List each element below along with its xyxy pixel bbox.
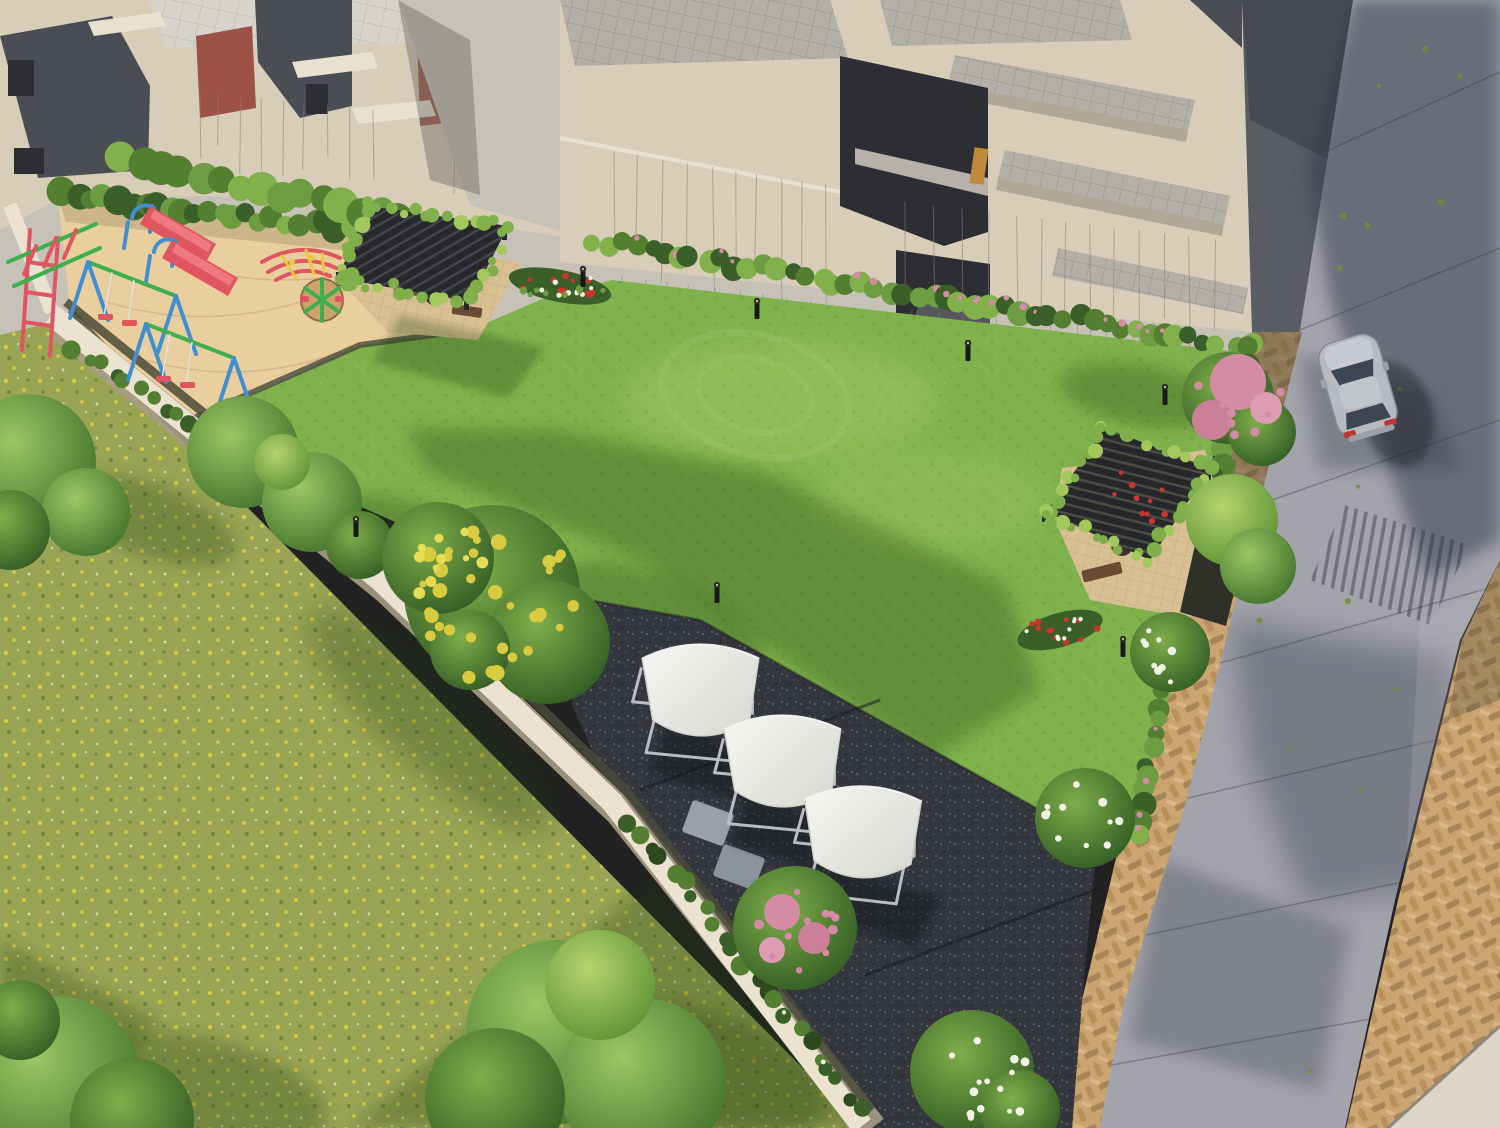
- fallen-leaf: [1256, 618, 1262, 624]
- white-flower: [589, 276, 593, 280]
- yellow-blossom: [542, 555, 555, 568]
- hedge-leaf: [1144, 737, 1164, 757]
- vine-leaf: [1180, 452, 1191, 463]
- blossom: [968, 1114, 975, 1121]
- blossom: [1004, 295, 1010, 301]
- vine-leaf: [362, 204, 376, 218]
- bollard-lamp: [582, 268, 584, 270]
- yellow-blossom: [497, 643, 508, 654]
- red-flower: [562, 273, 568, 279]
- vine-leaf: [416, 291, 428, 303]
- hedge-leaf: [803, 1032, 821, 1050]
- vine-leaf: [373, 283, 383, 293]
- white-flower: [1067, 627, 1071, 631]
- red-flower: [528, 277, 532, 281]
- blossom: [1104, 841, 1111, 848]
- blossom: [822, 910, 830, 918]
- vine-leaf: [1045, 525, 1054, 534]
- vine-leaf: [1105, 423, 1117, 435]
- red-flower: [1036, 625, 1042, 631]
- blossom: [1084, 843, 1089, 848]
- blossom: [1098, 798, 1107, 807]
- blossom: [974, 1037, 981, 1044]
- hedge-leaf: [684, 890, 696, 902]
- blossom: [769, 953, 776, 960]
- facade-joint: [988, 212, 989, 306]
- blossom: [1230, 430, 1239, 439]
- yellow-blossom: [418, 544, 426, 552]
- bollard-light: [1120, 636, 1126, 657]
- fallen-leaf: [1340, 213, 1346, 219]
- red-flower: [1078, 637, 1083, 642]
- bollard-light: [965, 340, 971, 361]
- vine-leaf: [361, 284, 369, 292]
- blossom: [977, 1105, 985, 1113]
- blossom: [1044, 804, 1050, 810]
- hedge-leaf: [631, 826, 649, 844]
- hedge-leaf: [1036, 305, 1057, 326]
- blossom: [1137, 812, 1143, 818]
- vine-leaf: [497, 228, 506, 237]
- vine-leaf: [388, 278, 399, 289]
- yellow-blossom: [463, 555, 469, 561]
- hedge-leaf: [764, 990, 782, 1008]
- hedge-leaf: [1237, 336, 1257, 356]
- vine-leaf: [1043, 592, 1055, 604]
- red-flower: [1160, 488, 1165, 493]
- blossom: [785, 932, 792, 939]
- plumeria-bed-right: [1130, 612, 1210, 692]
- blossom: [796, 967, 802, 973]
- blossom: [976, 1079, 981, 1084]
- vine-leaf: [1051, 495, 1065, 509]
- red-flower: [1148, 499, 1153, 504]
- vine-leaf: [344, 277, 358, 291]
- bollard-post: [966, 344, 971, 361]
- blossom: [1021, 1057, 1030, 1066]
- bollard-lamp: [1164, 386, 1166, 388]
- window: [14, 148, 44, 174]
- yellow-blossom: [466, 632, 476, 642]
- vine-leaf: [1042, 510, 1051, 519]
- vine-leaf: [1141, 440, 1152, 451]
- blossom: [786, 900, 792, 906]
- vine-leaf: [1142, 558, 1152, 568]
- blossom: [794, 889, 800, 895]
- blossom: [854, 272, 861, 279]
- fallen-leaf: [1308, 1069, 1312, 1073]
- fallen-leaf: [1288, 746, 1292, 750]
- yellow-blossom: [469, 548, 479, 558]
- bollard-light: [580, 266, 586, 287]
- bollard-light: [714, 582, 720, 603]
- vine-leaf: [1173, 510, 1186, 523]
- blossom: [831, 913, 839, 921]
- blossom: [719, 249, 723, 253]
- yellow-blossom: [477, 557, 489, 569]
- blossom: [1194, 381, 1202, 389]
- vine-leaf: [1167, 445, 1181, 459]
- vine-leaf: [1204, 460, 1219, 475]
- blossom: [782, 1010, 786, 1014]
- hedge-leaf: [828, 1071, 842, 1085]
- blossom: [1156, 637, 1161, 642]
- white-flower: [556, 293, 561, 298]
- hedge-leaf: [677, 872, 695, 890]
- hedge-leaf: [676, 246, 697, 267]
- vine-leaf: [1131, 551, 1141, 561]
- fallen-leaf: [1422, 46, 1428, 52]
- hedge-leaf: [583, 235, 600, 252]
- red-flower: [1139, 511, 1145, 517]
- blossom: [1055, 835, 1062, 842]
- blossom: [1214, 395, 1219, 400]
- blossom: [1168, 679, 1173, 684]
- hedge-leaf: [169, 407, 183, 421]
- red-flower: [1134, 495, 1140, 501]
- vine-leaf: [410, 203, 422, 215]
- red-flower: [1029, 621, 1034, 626]
- bollard-light: [754, 298, 760, 319]
- vine-leaf: [1074, 454, 1087, 467]
- fallen-leaf: [1345, 598, 1351, 604]
- blossom: [1009, 1070, 1015, 1076]
- red-flower: [1035, 619, 1042, 626]
- bollard-light: [353, 516, 359, 537]
- vine-leaf: [400, 210, 408, 218]
- vine-leaf: [1151, 527, 1166, 542]
- blossom: [1115, 817, 1123, 825]
- blossom: [822, 949, 829, 956]
- blossom: [1118, 319, 1126, 327]
- hedge-leaf: [61, 340, 80, 359]
- blossom: [949, 1052, 955, 1058]
- blossom: [1007, 1109, 1012, 1114]
- yellow-blossom: [485, 666, 497, 678]
- bollard-post: [1121, 640, 1126, 657]
- blossom: [781, 925, 787, 931]
- hedge-leaf: [94, 354, 109, 369]
- yellow-blossom: [554, 554, 563, 563]
- bollard-post: [1163, 388, 1168, 405]
- fallen-leaf: [1438, 199, 1444, 205]
- blossom: [1265, 411, 1271, 417]
- pink-bush-gravel: [733, 866, 857, 990]
- blossom: [1151, 663, 1157, 669]
- yellow-blossom: [413, 587, 425, 599]
- bollard-post: [581, 270, 586, 287]
- hedge-leaf: [854, 1099, 871, 1116]
- bollard-post: [354, 520, 359, 537]
- fallen-leaf: [1393, 687, 1397, 691]
- blossom: [1103, 317, 1107, 321]
- hedge-tree: [285, 179, 314, 208]
- white-flower: [1025, 629, 1029, 633]
- red-flower: [589, 290, 596, 297]
- yellow-blossom: [414, 551, 425, 562]
- yellow-blossom: [466, 574, 475, 583]
- vine-leaf: [1079, 519, 1092, 532]
- hedge-leaf: [147, 391, 161, 405]
- white-flower: [1055, 635, 1059, 639]
- blossom: [634, 235, 639, 240]
- blossom: [828, 925, 838, 935]
- bollard-lamp: [716, 584, 718, 586]
- blossom: [1136, 324, 1142, 330]
- white-flower: [553, 279, 558, 284]
- hedge-leaf: [705, 917, 720, 932]
- blossom: [754, 920, 764, 930]
- leaf: [528, 292, 533, 297]
- white-flower: [589, 286, 593, 290]
- blossom: [1168, 647, 1177, 656]
- blossom: [1044, 810, 1051, 817]
- blossom: [1059, 804, 1066, 811]
- blossom: [1146, 628, 1151, 633]
- red-flower: [1149, 518, 1155, 524]
- blossom: [997, 1086, 1003, 1092]
- hedge-leaf: [700, 900, 715, 915]
- blossom: [1244, 381, 1251, 388]
- red-flower: [571, 279, 576, 284]
- blossom: [870, 278, 877, 285]
- blossom: [1227, 419, 1236, 428]
- blossom: [1016, 1107, 1025, 1116]
- vine-leaf: [1108, 536, 1119, 547]
- vine-leaf: [1055, 515, 1070, 530]
- vine-leaf: [1070, 473, 1079, 482]
- blossom: [989, 300, 995, 306]
- hedge-leaf: [1179, 326, 1196, 343]
- hedge-leaf: [764, 257, 787, 280]
- white-flower: [539, 288, 544, 293]
- hedge-leaf: [1150, 711, 1166, 727]
- blossom: [957, 295, 962, 300]
- leaf: [562, 292, 568, 298]
- white-flower: [1078, 617, 1082, 621]
- bollard-post: [715, 586, 720, 603]
- leaf: [600, 288, 605, 293]
- vine-leaf: [496, 245, 507, 256]
- hedge-leaf: [775, 1008, 791, 1024]
- vine-leaf: [1096, 423, 1106, 433]
- vine-leaf: [425, 208, 440, 223]
- yellow-blossom: [535, 613, 545, 623]
- blossom: [1136, 825, 1141, 830]
- yellow-blossom: [507, 652, 517, 662]
- vine-leaf: [450, 295, 463, 308]
- hedge-leaf: [1053, 310, 1071, 328]
- yellow-blossom: [460, 528, 469, 537]
- bollard-lamp: [756, 300, 758, 302]
- blossom: [1250, 427, 1260, 437]
- yellow-blossom: [523, 646, 533, 656]
- vine-leaf: [393, 287, 406, 300]
- blossom: [1010, 1055, 1019, 1064]
- blossom: [1145, 329, 1149, 333]
- red-flower: [1145, 512, 1150, 517]
- vine-leaf: [488, 215, 499, 226]
- red-flower: [1094, 625, 1101, 632]
- white-flower: [1072, 619, 1076, 623]
- red-flower: [1161, 511, 1168, 518]
- vine-leaf: [1088, 443, 1103, 458]
- blossom: [1221, 375, 1227, 381]
- yellow-blossom: [425, 576, 436, 587]
- leaf: [520, 287, 528, 295]
- bollard-light: [1162, 384, 1168, 405]
- vine-leaf: [386, 202, 398, 214]
- hedge-leaf: [648, 847, 666, 865]
- red-flower: [1119, 470, 1124, 475]
- bollard-lamp: [967, 342, 969, 344]
- vine-leaf: [1093, 533, 1102, 542]
- vine-leaf: [349, 233, 363, 247]
- blossom: [821, 1059, 826, 1064]
- fallen-leaf: [1377, 84, 1381, 88]
- vine-leaf: [1134, 431, 1143, 440]
- bollard-lamp: [355, 518, 357, 520]
- red-flower: [1129, 482, 1136, 489]
- yellow-blossom: [488, 585, 503, 600]
- scene-render: [0, 0, 1500, 1128]
- white-flower: [1062, 636, 1066, 640]
- yellow-blossom: [433, 565, 440, 572]
- vine-leaf: [463, 289, 478, 304]
- red-flower: [1112, 492, 1117, 497]
- yellow-blossom: [567, 600, 579, 612]
- red-flower: [1048, 627, 1054, 633]
- yellow-blossom: [556, 624, 564, 632]
- vine-leaf: [1044, 555, 1054, 565]
- hedge-leaf: [134, 381, 149, 396]
- fallen-leaf: [1337, 265, 1343, 271]
- vine-leaf: [1056, 483, 1069, 496]
- vine-leaf: [488, 257, 496, 265]
- merry-go-round: [300, 279, 344, 321]
- vine-leaf: [1147, 542, 1162, 557]
- hedge-leaf: [796, 267, 815, 286]
- vine-leaf: [1046, 537, 1054, 545]
- hedge-leaf: [1206, 335, 1224, 353]
- blossom: [1153, 727, 1157, 731]
- vine-leaf: [1045, 577, 1057, 589]
- yellow-blossom: [419, 581, 426, 588]
- yellow-blossom: [507, 602, 515, 610]
- fallen-leaf: [1364, 222, 1370, 228]
- render-stage: [0, 0, 1500, 1128]
- yellow-blossom: [462, 671, 475, 684]
- plumeria-bush-1: [1035, 768, 1135, 868]
- vine-leaf: [1120, 427, 1135, 442]
- blossom: [1219, 402, 1225, 408]
- leaf: [534, 288, 540, 294]
- vine-leaf: [429, 292, 443, 306]
- hedge-leaf: [891, 284, 913, 306]
- yellow-blossom: [425, 630, 436, 641]
- yellow-blossom: [425, 609, 439, 623]
- window: [306, 84, 328, 114]
- yellow-blossom: [435, 622, 444, 631]
- blossom: [1107, 819, 1112, 824]
- yellow-blossom: [436, 554, 446, 564]
- blossom: [730, 259, 734, 263]
- blossom: [1227, 409, 1236, 418]
- bollard-lamp: [1122, 638, 1124, 640]
- vine-leaf: [1091, 431, 1103, 443]
- blossom: [969, 1087, 978, 1096]
- blossom: [984, 1078, 990, 1084]
- blossom: [1238, 395, 1245, 402]
- yellow-blossom: [444, 624, 455, 635]
- red-flower: [1064, 617, 1069, 622]
- hedge-tree: [161, 155, 193, 187]
- fallen-leaf: [1356, 485, 1360, 489]
- blossom: [1142, 641, 1149, 648]
- blossom: [1276, 388, 1285, 397]
- yellow-blossom: [491, 534, 507, 550]
- blossom: [943, 291, 949, 297]
- facade-joint: [327, 105, 328, 158]
- window: [8, 60, 34, 96]
- blossom: [1020, 303, 1027, 310]
- blossom: [1237, 364, 1245, 372]
- vine-leaf: [442, 211, 453, 222]
- yellow-blossom: [434, 534, 443, 543]
- vine-leaf: [477, 269, 490, 282]
- blossom: [1143, 778, 1150, 785]
- fallen-leaf: [1457, 74, 1463, 80]
- blossom: [804, 917, 811, 924]
- blossom: [1073, 781, 1080, 788]
- bollard-post: [755, 302, 760, 319]
- fallen-leaf: [1358, 788, 1362, 792]
- leaf: [543, 291, 549, 297]
- vine-leaf: [454, 215, 469, 230]
